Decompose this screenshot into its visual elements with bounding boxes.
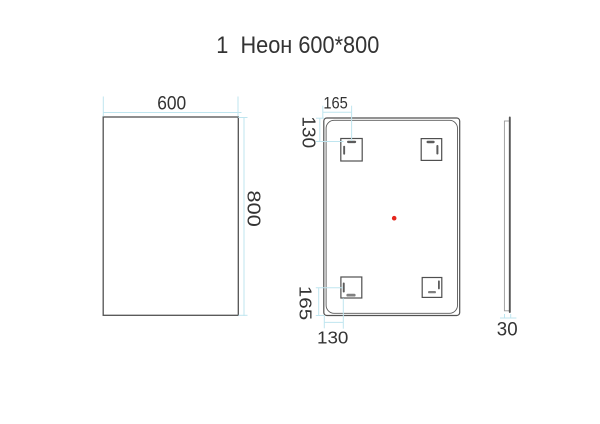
svg-text:165: 165	[323, 95, 348, 113]
svg-text:30: 30	[497, 319, 518, 341]
svg-text:130: 130	[317, 327, 348, 347]
svg-text:130: 130	[298, 116, 318, 148]
svg-text:600: 600	[157, 93, 186, 115]
svg-text:1 Неон 600*800: 1 Неон 600*800	[216, 32, 379, 59]
svg-text:800: 800	[244, 190, 265, 227]
svg-text:165: 165	[296, 286, 316, 321]
